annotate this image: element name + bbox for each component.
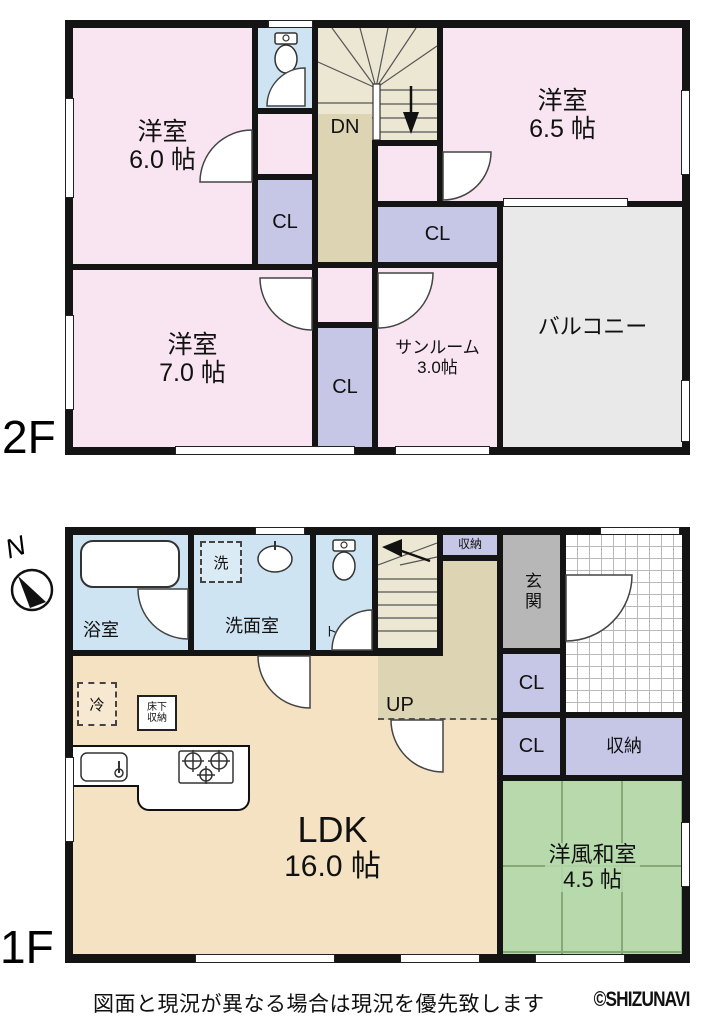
- closet-label: CL: [519, 672, 545, 694]
- toilet-icon: [329, 539, 359, 583]
- storage-label: 収納: [458, 538, 482, 551]
- stairs-up-arrow-icon: [382, 539, 402, 557]
- stairs-1f: [378, 535, 437, 648]
- balcony: バルコニー: [503, 207, 682, 447]
- fridge-label: 冷: [89, 694, 104, 715]
- stairs-treads-icon: [378, 535, 437, 648]
- closet-label: CL: [332, 376, 358, 398]
- floor-2f-label: 2F: [2, 410, 56, 464]
- hall-2f: DN: [318, 114, 372, 262]
- entrance-porch: [566, 535, 682, 712]
- room-washitsu: 洋風和室 4.5 帖: [503, 781, 682, 954]
- hall-lower-1f: UP: [378, 656, 497, 720]
- room-size: 3.0帖: [417, 358, 458, 377]
- window-marker: [681, 90, 690, 175]
- closet-cl2: CL: [378, 207, 497, 262]
- compass-needle: [18, 576, 46, 608]
- window-marker: [600, 527, 680, 535]
- window-marker: [400, 954, 480, 963]
- room-name: 洋室: [167, 331, 217, 359]
- hall-passage-2f: [258, 114, 312, 174]
- window-marker: [195, 954, 335, 963]
- bathtub-icon: [79, 539, 181, 589]
- stairs-dn-label: DN: [331, 116, 360, 138]
- window-marker: [65, 315, 74, 410]
- window-marker: [268, 20, 313, 28]
- window-marker: [503, 198, 628, 207]
- closet-cl5: CL: [503, 718, 560, 775]
- closet-cl1: CL: [258, 180, 312, 264]
- room-name: 洋風和室: [545, 843, 639, 868]
- window-marker: [681, 380, 690, 442]
- toilet-icon: [271, 32, 301, 76]
- window-marker: [395, 446, 490, 455]
- stairs-up-label: UP: [386, 694, 414, 716]
- room-name: 浴室: [83, 620, 119, 640]
- room-size: 16.0 帖: [240, 850, 425, 883]
- room-size: 6.5 帖: [529, 115, 596, 143]
- washer-label: 洗: [213, 552, 228, 573]
- room-name: LDK: [240, 810, 425, 850]
- storage-label: 収納: [606, 736, 642, 756]
- room-name: 洗面室: [225, 616, 279, 636]
- window-marker: [255, 527, 305, 535]
- compass-north-label: N: [2, 530, 30, 564]
- storage-top: 収納: [443, 535, 497, 555]
- floor-plan-page: 洋室 6.0 帖 トイレ CL: [0, 0, 712, 1024]
- room-name: 玄関: [522, 572, 541, 612]
- window-marker: [65, 98, 74, 198]
- kitchen-counter-overhang: [137, 785, 250, 811]
- room-western-7-0: 洋室 7.0 帖: [73, 270, 312, 447]
- hall-front-stairs-2f: [378, 146, 437, 201]
- balcony-label: バルコニー: [538, 315, 648, 340]
- washer-box: 洗: [200, 541, 242, 583]
- closet-label: CL: [272, 211, 298, 233]
- room-name: 洋室: [537, 87, 587, 115]
- closet-cl4: CL: [503, 654, 560, 712]
- storage-2: 収納: [566, 718, 682, 775]
- room-name: サンルーム: [395, 338, 480, 357]
- hall-passage2-2f: [318, 268, 372, 322]
- window-marker: [681, 822, 690, 887]
- floor-1f-label: 1F: [0, 920, 54, 974]
- room-size: 4.5 帖: [560, 868, 625, 893]
- room-name: 洋室: [137, 118, 187, 146]
- kitchen-fixtures-icon: [73, 747, 248, 787]
- window-marker: [65, 757, 74, 842]
- closet-label: CL: [425, 223, 451, 245]
- shizunavi-logo: ©SHIZUNAVI: [592, 988, 690, 1012]
- room-size: 7.0 帖: [159, 359, 226, 387]
- floor-storage-box: 床下 収納: [137, 695, 177, 731]
- room-western-6-0: 洋室 6.0 帖: [73, 28, 252, 264]
- fridge-box: 冷: [77, 682, 117, 726]
- floor-storage-line1: 床下: [147, 702, 167, 714]
- closet-cl3: CL: [318, 328, 372, 447]
- window-marker: [535, 954, 625, 963]
- compass-icon: N: [2, 530, 60, 622]
- room-western-6-5: 洋室 6.5 帖: [443, 28, 682, 201]
- disclaimer-text: 図面と現況が異なる場合は現況を優先致します: [93, 988, 545, 1018]
- room-name: トイレ: [265, 89, 304, 104]
- sink-icon: [251, 539, 297, 575]
- floor-storage-line2: 収納: [147, 713, 167, 725]
- kitchen-counter: [73, 745, 250, 787]
- closet-label: CL: [519, 735, 545, 757]
- stairs-down-arrow-icon: [403, 112, 419, 134]
- floor-1f-plan: 浴室 洗面室 トイレ 収納 玄関: [65, 527, 690, 963]
- room-name: トイレ: [324, 625, 363, 640]
- room-size: 6.0 帖: [129, 146, 196, 174]
- ldk-label: LDK 16.0 帖: [240, 810, 425, 883]
- room-genkan: 玄関: [503, 535, 560, 648]
- window-marker: [175, 446, 355, 455]
- room-sunroom: サンルーム 3.0帖: [378, 268, 497, 447]
- floor-2f-plan: 洋室 6.0 帖 トイレ CL: [65, 20, 690, 455]
